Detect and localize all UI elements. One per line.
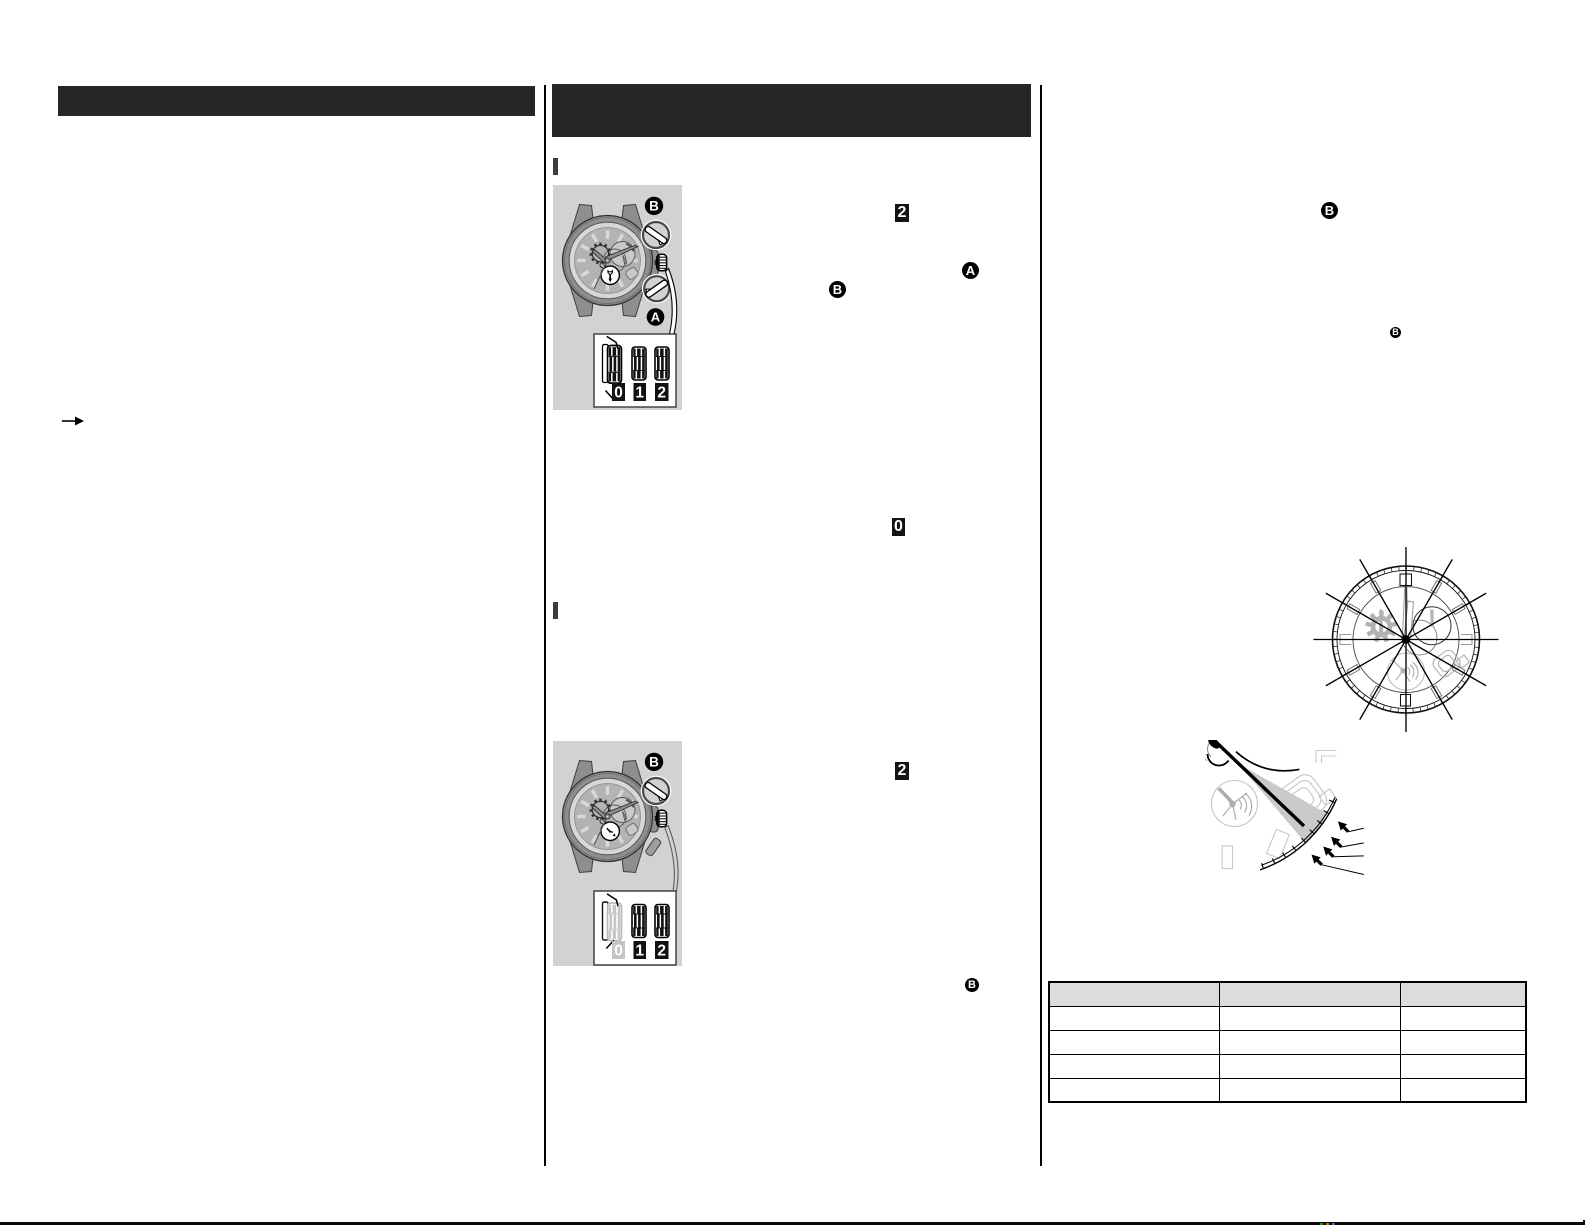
svg-text:1: 1 <box>635 943 644 960</box>
svg-text:1: 1 <box>635 385 644 402</box>
svg-text:0: 0 <box>614 943 623 960</box>
svg-text:B: B <box>649 755 659 770</box>
svg-text:B: B <box>649 199 659 214</box>
svg-text:0: 0 <box>614 385 623 402</box>
svg-text:2: 2 <box>657 943 666 960</box>
svg-text:A: A <box>651 310 661 325</box>
svg-text:2: 2 <box>657 385 666 402</box>
